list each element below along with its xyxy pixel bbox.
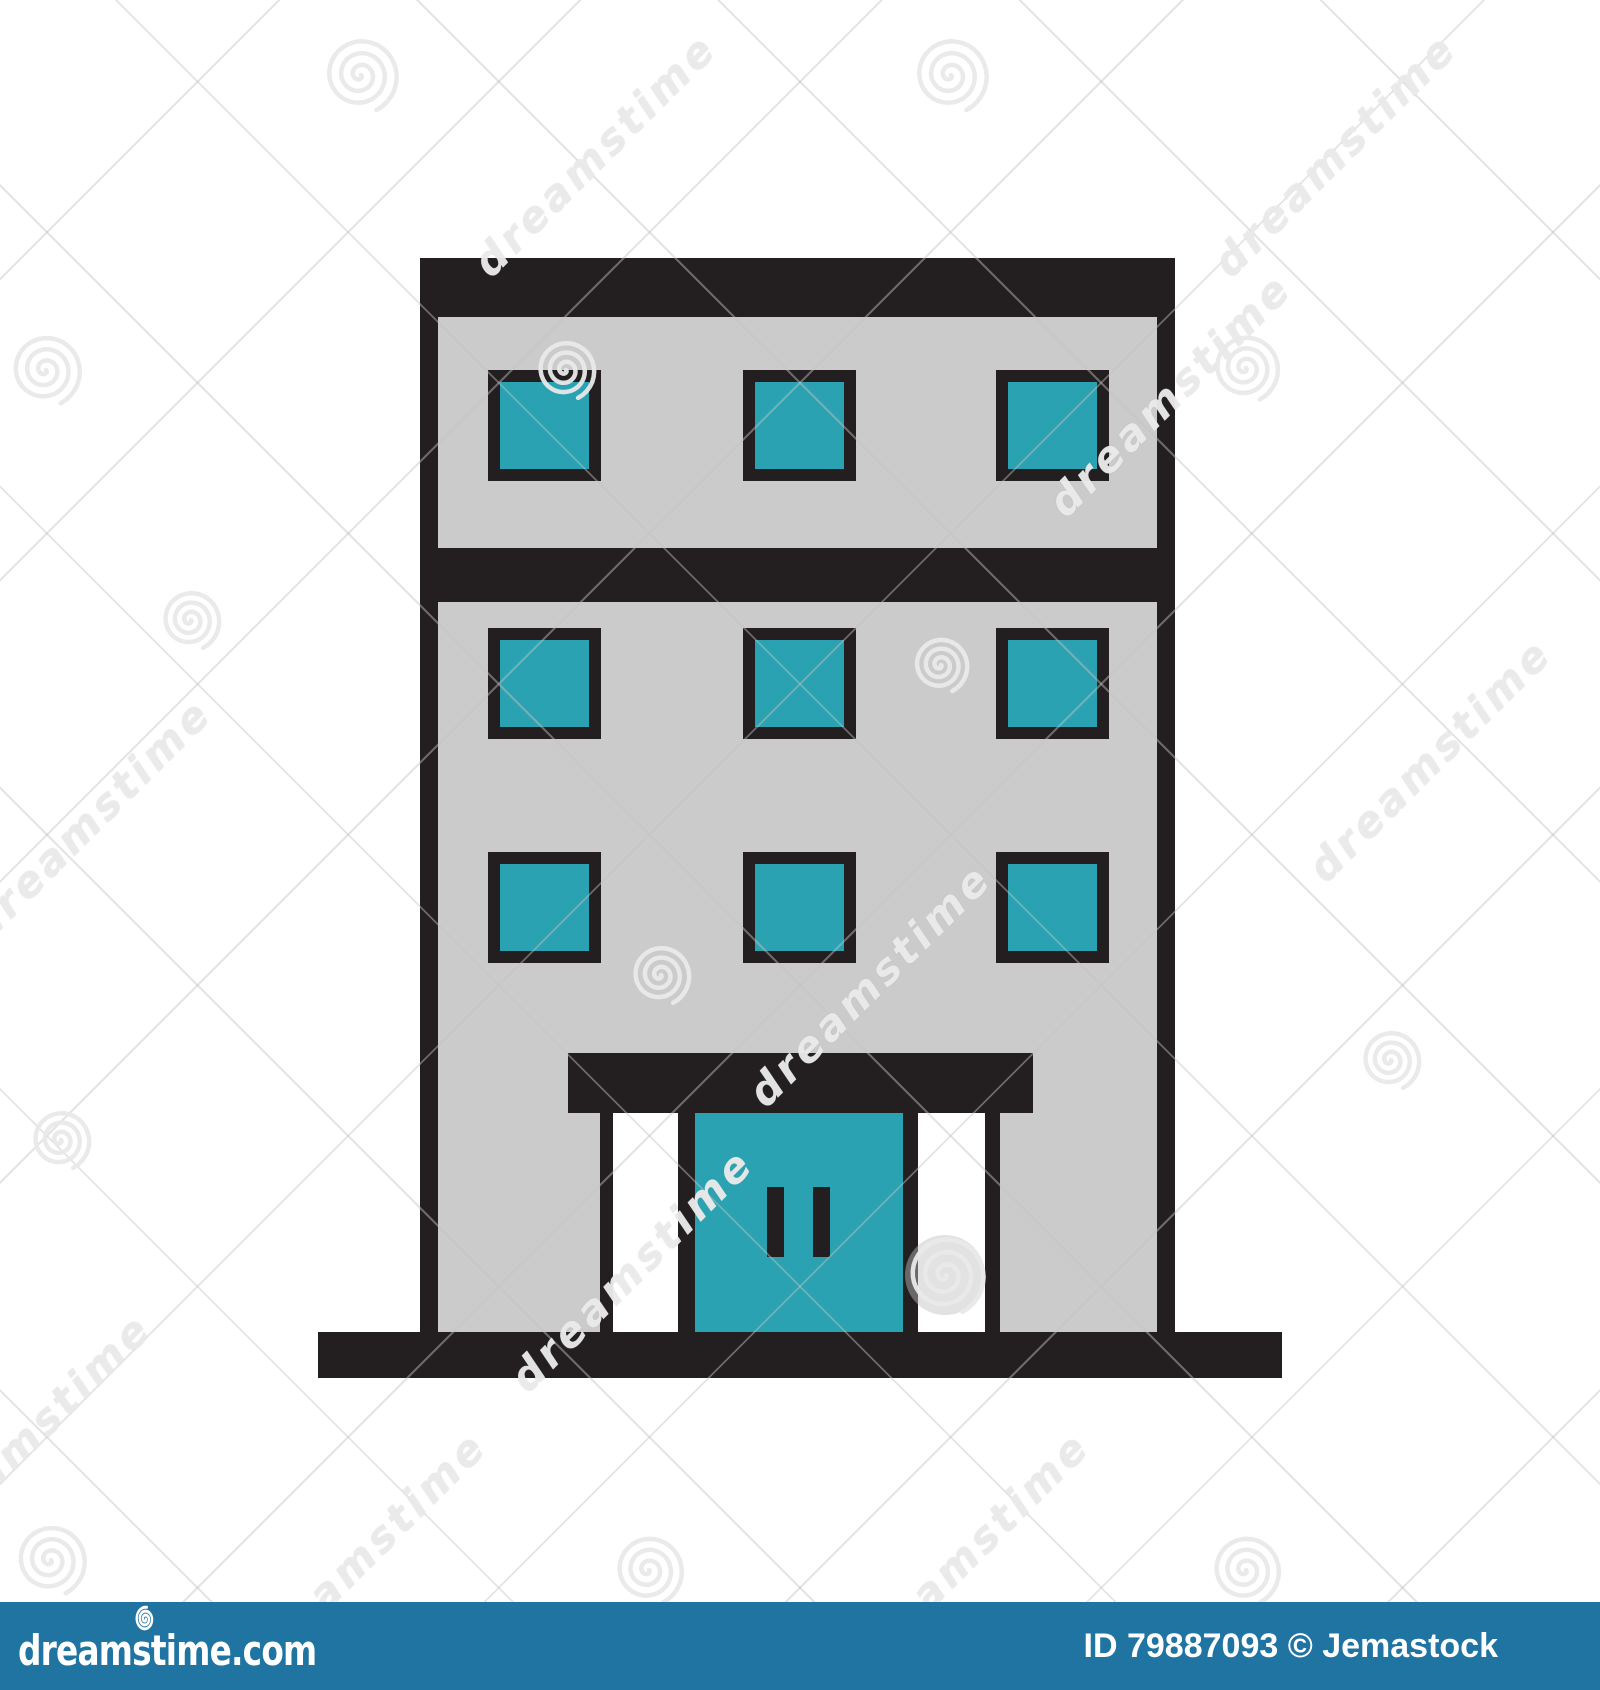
watermark-spiral-icon (1356, 1026, 1424, 1094)
entrance-pillar-left (613, 1113, 678, 1332)
building-window (996, 628, 1109, 739)
watermark-spiral-icon (26, 1106, 94, 1174)
dreamstime-logo-text: dreamstime.com (18, 1626, 316, 1675)
entrance-pillar-right (918, 1113, 985, 1332)
watermark-text: dreamstime (0, 688, 222, 951)
stock-image-canvas: dreamstimedreamstimedreamstimedreamstime… (0, 0, 1600, 1690)
watermark-text: dreamstime (0, 1303, 162, 1566)
watermark-spiral-icon (1206, 1531, 1284, 1609)
building-illustration (420, 258, 1175, 1332)
dreamstime-spiral-icon (133, 1604, 156, 1634)
image-credit: ID 79887093 © Jemastock (1084, 1627, 1498, 1666)
watermark-spiral-icon (10, 1520, 90, 1600)
watermark-text: dreamstime (1203, 23, 1466, 286)
building-window (743, 370, 856, 481)
watermark-spiral-icon (908, 33, 992, 117)
building-window (488, 628, 601, 739)
entrance-canopy (568, 1053, 1033, 1113)
building-window (996, 370, 1109, 481)
door-handle-left (767, 1187, 784, 1257)
building-base (318, 1332, 1282, 1378)
building-window (996, 852, 1109, 963)
door-handle-right (813, 1187, 830, 1257)
watermark-spiral-icon (5, 330, 85, 410)
watermark-text: dreamstime (463, 23, 726, 286)
watermark-text: dreamstime (1298, 628, 1561, 891)
dreamstime-logo: dreamstime.com (18, 1618, 316, 1675)
building-window (488, 370, 601, 481)
watermark-spiral-icon (609, 1531, 687, 1609)
entrance-door (695, 1113, 903, 1332)
watermark-spiral-icon (1207, 330, 1283, 406)
building-window (743, 628, 856, 739)
footer-bar: dreamstime.com ID 79887093 © Jemastock (0, 1602, 1600, 1690)
watermark-spiral-icon (318, 33, 402, 117)
building-entrance (600, 1113, 1000, 1332)
building-window (743, 852, 856, 963)
watermark-spiral-icon (156, 586, 224, 654)
building-window (488, 852, 601, 963)
